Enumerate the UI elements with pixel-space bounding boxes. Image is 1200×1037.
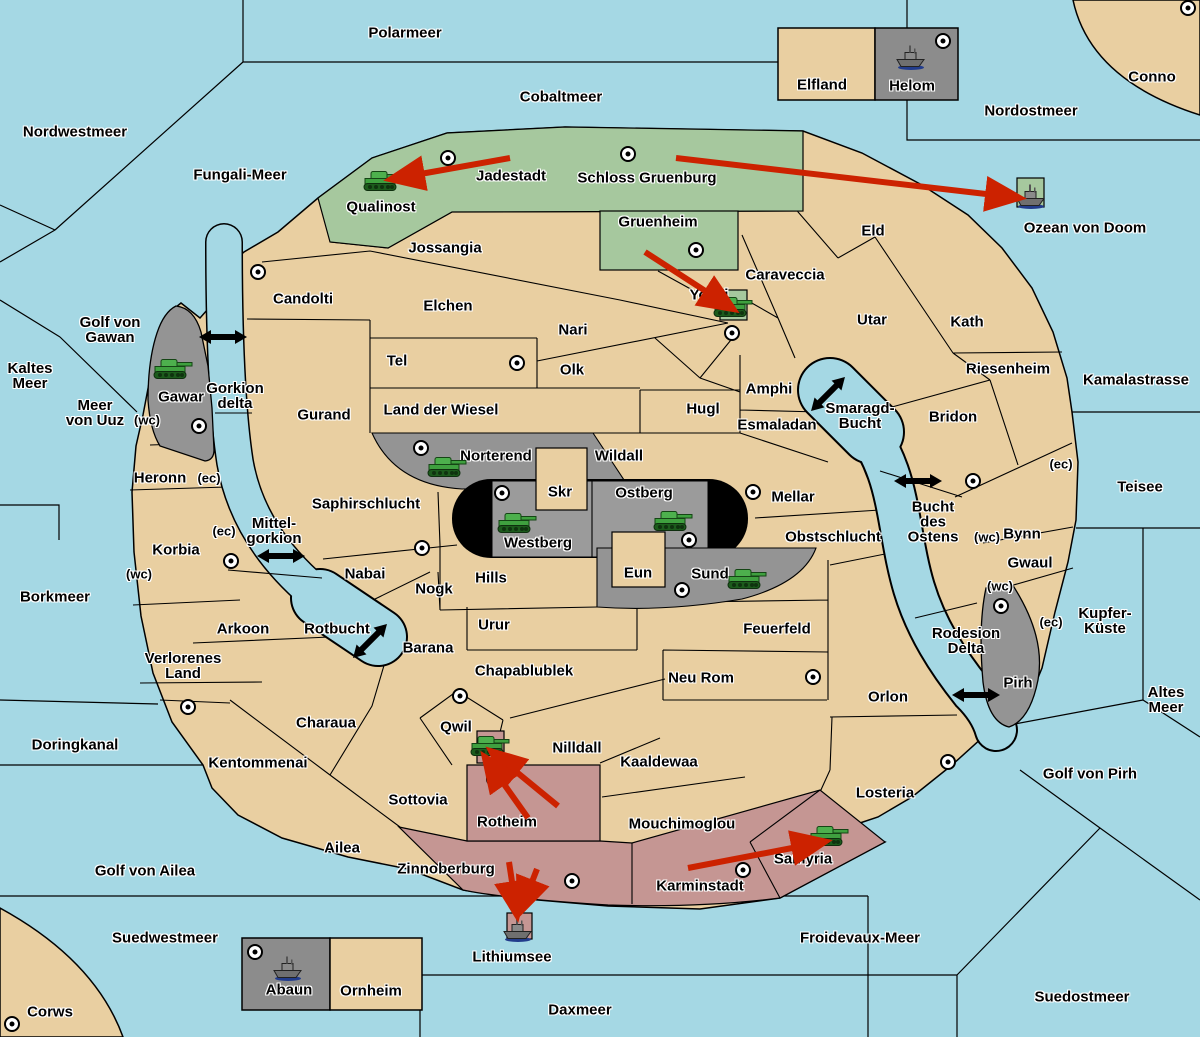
- tank-unit[interactable]: [808, 824, 850, 855]
- tank-unit[interactable]: [362, 169, 404, 200]
- tank-icon: [426, 455, 468, 481]
- units-layer: [0, 0, 1200, 1037]
- tank-unit[interactable]: [496, 511, 538, 542]
- tank-unit[interactable]: [726, 567, 768, 598]
- tank-unit[interactable]: [469, 734, 511, 765]
- game-map[interactable]: PolarmeerCobaltmeerNordwestmeerFungali-M…: [0, 0, 1200, 1037]
- tank-icon: [469, 734, 511, 760]
- ship-icon: [1013, 183, 1049, 211]
- ship-unit[interactable]: [500, 916, 536, 949]
- tank-icon: [652, 509, 694, 535]
- ship-unit[interactable]: [893, 44, 929, 77]
- ship-unit[interactable]: [270, 955, 306, 988]
- tank-icon: [726, 567, 768, 593]
- ship-unit[interactable]: [1013, 183, 1049, 216]
- tank-icon: [808, 824, 850, 850]
- ship-icon: [893, 44, 929, 72]
- tank-icon: [496, 511, 538, 537]
- tank-icon: [362, 169, 404, 195]
- tank-icon: [152, 357, 194, 383]
- tank-unit[interactable]: [712, 295, 754, 326]
- tank-unit[interactable]: [152, 357, 194, 388]
- ship-icon: [500, 916, 536, 944]
- ship-icon: [270, 955, 306, 983]
- tank-icon: [712, 295, 754, 321]
- tank-unit[interactable]: [652, 509, 694, 540]
- tank-unit[interactable]: [426, 455, 468, 486]
